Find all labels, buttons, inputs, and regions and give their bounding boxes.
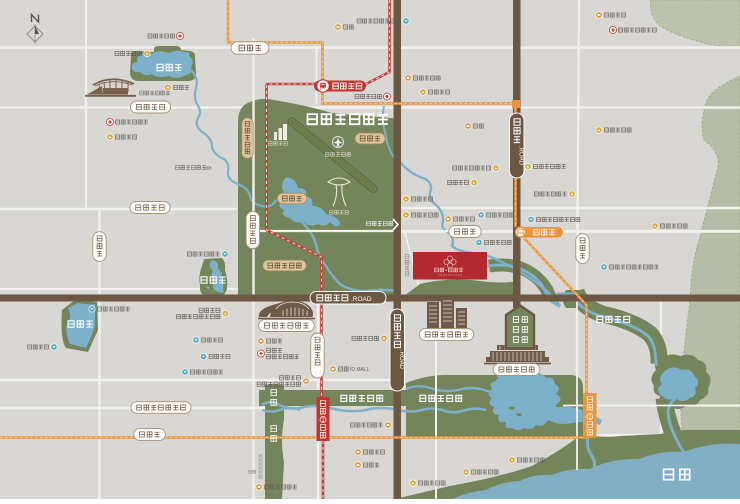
- svg-text:ID MALL: ID MALL: [350, 367, 370, 373]
- svg-text:.ROAD: .ROAD: [398, 350, 404, 370]
- svg-text:.ROAD: .ROAD: [518, 146, 524, 166]
- svg-text:.ROAD: .ROAD: [351, 296, 372, 303]
